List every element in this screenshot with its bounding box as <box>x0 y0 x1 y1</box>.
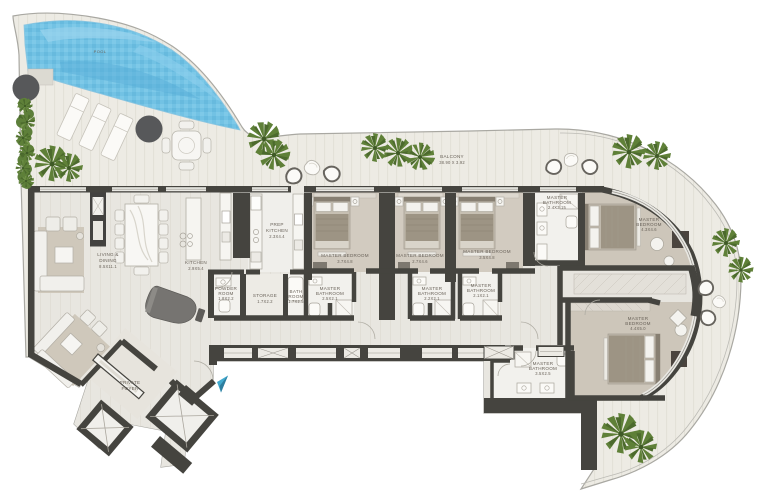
svg-text:2.9X5.4: 2.9X5.4 <box>188 266 204 271</box>
svg-text:3.5X2.5: 3.5X2.5 <box>535 371 551 376</box>
svg-text:2.3X4.4: 2.3X4.4 <box>269 234 285 239</box>
svg-text:MASTER BEDROOM: MASTER BEDROOM <box>463 249 511 254</box>
svg-text:KITCHEN: KITCHEN <box>185 260 207 265</box>
svg-text:2.4X3.15: 2.4X3.15 <box>548 205 567 210</box>
svg-text:3.5X4.8: 3.5X4.8 <box>479 255 495 260</box>
svg-text:2.1X2.1: 2.1X2.1 <box>473 293 489 298</box>
svg-text:PREP: PREP <box>270 222 284 227</box>
svg-text:MASTER BEDROOM: MASTER BEDROOM <box>396 253 444 258</box>
svg-text:STORAGE: STORAGE <box>253 293 277 298</box>
svg-text:38.90 X 3.92: 38.90 X 3.92 <box>439 160 465 165</box>
svg-text:KITCHEN: KITCHEN <box>266 228 288 233</box>
svg-text:POOL: POOL <box>94 49 107 54</box>
svg-text:8.5X11.1: 8.5X11.1 <box>99 264 117 269</box>
svg-text:1.7X2.2: 1.7X2.2 <box>257 299 273 304</box>
svg-text:2.2X2.1: 2.2X2.1 <box>424 296 440 301</box>
svg-text:4.4X5.0: 4.4X5.0 <box>630 326 646 331</box>
svg-text:DINING: DINING <box>99 258 117 263</box>
svg-text:4.3X4.6: 4.3X4.6 <box>641 227 657 232</box>
svg-text:LIVING &: LIVING & <box>97 252 118 257</box>
svg-text:2.5X2.1: 2.5X2.1 <box>322 296 338 301</box>
svg-text:FOYER: FOYER <box>121 386 139 391</box>
svg-text:PRIVATE: PRIVATE <box>120 380 141 385</box>
svg-text:2.7X4.6: 2.7X4.6 <box>412 259 428 264</box>
svg-text:MASTER BEDROOM: MASTER BEDROOM <box>321 253 369 258</box>
svg-text:1.8X2.2: 1.8X2.2 <box>218 296 234 301</box>
svg-text:BALCONY: BALCONY <box>440 154 464 159</box>
svg-text:1.7X2.5: 1.7X2.5 <box>288 299 304 304</box>
svg-text:3.7X4.8: 3.7X4.8 <box>337 259 353 264</box>
